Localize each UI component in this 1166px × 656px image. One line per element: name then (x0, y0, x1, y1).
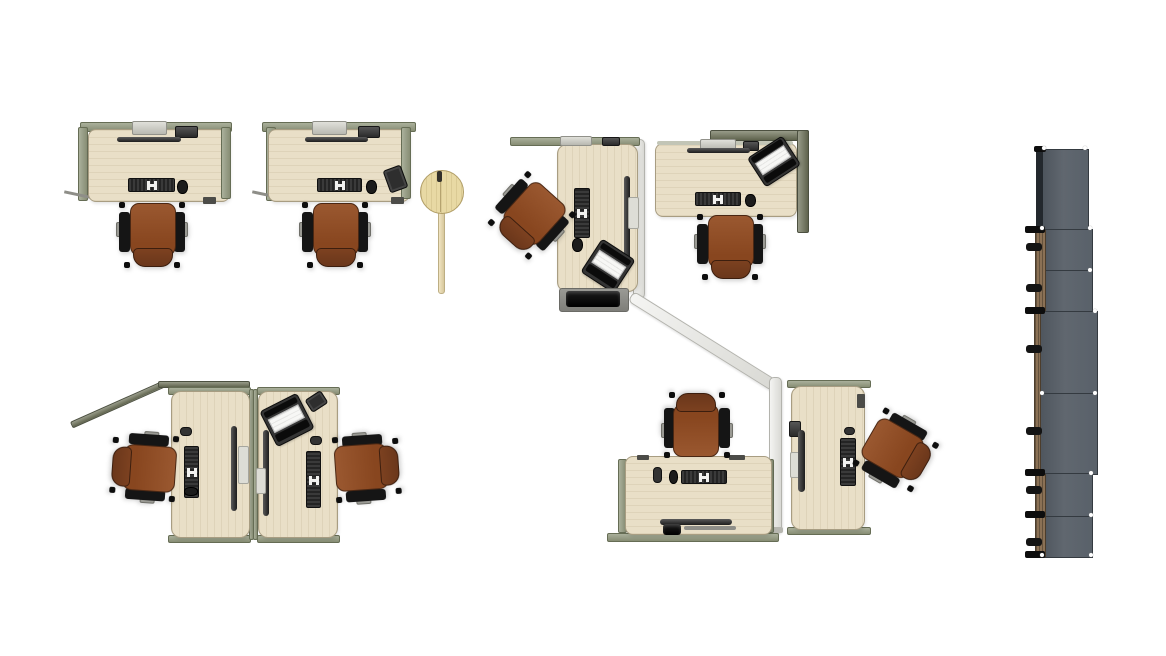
storage-unit (1040, 270, 1093, 313)
connector-dot (1040, 226, 1044, 230)
docking-unit (132, 121, 167, 135)
cpu (566, 291, 620, 307)
drawer-handle (1026, 284, 1042, 292)
keyboard-center (577, 209, 587, 218)
floorplan-canvas (0, 0, 1166, 656)
keyboard (681, 470, 727, 484)
chair-armrest (302, 212, 313, 252)
monitor-bar (687, 148, 750, 153)
chair-caster (119, 202, 125, 208)
chair-caster (395, 488, 401, 494)
screen-segment-diagonal (628, 291, 779, 391)
chair-caster (724, 452, 730, 458)
task-chair (664, 393, 730, 457)
keyboard-center (187, 468, 197, 477)
chair-caster (302, 202, 308, 208)
task-chair (119, 203, 185, 267)
keyboard (695, 192, 741, 206)
storage-unit (1040, 516, 1093, 558)
monitor-bar (305, 137, 368, 142)
cpu-bracket (628, 197, 639, 229)
chair-caster (332, 437, 338, 443)
monitor-arm (684, 526, 736, 530)
round-table-top (420, 170, 464, 214)
table-leg (438, 210, 445, 294)
keyboard (128, 178, 175, 192)
chair-caster (113, 437, 119, 443)
chair-caster (931, 441, 939, 449)
task-chair (853, 407, 941, 496)
phone (653, 467, 662, 483)
connector-dot (1089, 553, 1093, 557)
connector-dot (1088, 268, 1092, 272)
keyboard (574, 188, 590, 238)
storage-unit (1040, 229, 1093, 272)
chair-caster (882, 407, 890, 415)
drawer-handle (1026, 538, 1042, 546)
keyboard-center (713, 195, 723, 204)
chair-backrest (111, 446, 133, 487)
storage-cap (1025, 307, 1045, 314)
mouse (177, 180, 188, 194)
chair-caster (906, 485, 914, 493)
desk-side-panel (78, 127, 88, 201)
docking-unit (560, 136, 592, 146)
storage-unit (1042, 149, 1089, 231)
task-chair (333, 433, 401, 503)
desk-clip (391, 197, 404, 204)
phone (602, 137, 620, 146)
storage-edge (1036, 149, 1043, 230)
mouse (572, 238, 583, 252)
desk-clip (729, 455, 745, 460)
mouse (310, 436, 322, 445)
chair-backrest (133, 248, 173, 267)
angled-rail (70, 381, 165, 428)
cpu (663, 524, 681, 535)
chair-caster (719, 392, 725, 398)
chair-armrest (119, 212, 130, 252)
monitor-bar (798, 430, 805, 492)
desk-clip (857, 394, 865, 408)
chair-caster (169, 496, 175, 502)
chair-caster (524, 252, 532, 260)
cpu-bracket (238, 446, 249, 484)
mouse (745, 194, 756, 207)
connector-dot (1089, 471, 1093, 475)
chair-backrest (676, 393, 716, 412)
chair-caster (124, 262, 130, 268)
mouse (844, 427, 855, 435)
keyboard-center (309, 476, 319, 485)
keyboard (317, 178, 362, 192)
chair-caster (174, 262, 180, 268)
chair-caster (357, 262, 363, 268)
storage-unit (1040, 473, 1093, 518)
connector-dot (1083, 146, 1087, 150)
cpu-bracket (256, 468, 266, 494)
corner-panel-side (797, 130, 809, 233)
chair-caster (307, 262, 313, 268)
chair-caster (664, 452, 670, 458)
storage-unit (1038, 311, 1098, 395)
chair-backrest (379, 445, 401, 486)
chair-caster (487, 218, 495, 226)
chair-caster (752, 274, 758, 280)
chair-armrest (719, 408, 730, 448)
chair-backrest (711, 260, 751, 279)
desk-side-panel (221, 127, 231, 199)
chair-armrest (697, 224, 708, 264)
connector-dot (1040, 553, 1044, 557)
task-chair (110, 432, 178, 502)
chair-caster (362, 202, 368, 208)
desk-clip (203, 197, 216, 204)
keyboard-center (335, 181, 345, 190)
chair-caster (524, 170, 532, 178)
table-slot (437, 171, 442, 182)
chair-caster (173, 436, 179, 442)
drawer-handle (1026, 345, 1042, 353)
chair-caster (179, 202, 185, 208)
storage-cap (1025, 469, 1045, 476)
connector-dot (1040, 391, 1044, 395)
monitor-bar (231, 426, 237, 511)
drawer-handle (1026, 486, 1042, 494)
connector-dot (1093, 309, 1097, 313)
task-chair (697, 215, 763, 279)
desk-clip (637, 455, 649, 460)
chair-caster (697, 214, 703, 220)
chair-caster (336, 497, 342, 503)
monitor-bar (117, 137, 181, 142)
chair-caster (669, 392, 675, 398)
keyboard-center (147, 181, 157, 190)
chair-caster (392, 438, 398, 444)
connector-dot (1088, 226, 1092, 230)
drawer-handle (1026, 427, 1042, 435)
chair-caster (109, 487, 115, 493)
phone (180, 427, 192, 436)
chair-backrest (316, 248, 356, 267)
keyboard (306, 451, 321, 508)
mouse (184, 487, 198, 496)
docking-unit (312, 121, 347, 135)
storage-unit (1038, 393, 1098, 475)
table-seam (440, 182, 441, 212)
mouse (366, 180, 377, 194)
mouse (669, 470, 678, 484)
connector-dot (1042, 146, 1046, 150)
task-chair (302, 203, 368, 267)
connector-dot (1089, 513, 1093, 517)
chair-caster (702, 274, 708, 280)
storage-cap (1025, 511, 1045, 518)
chair-caster (757, 214, 763, 220)
drawer-handle (1026, 243, 1042, 251)
connector-dot (1093, 391, 1097, 395)
keyboard-center (699, 473, 709, 482)
